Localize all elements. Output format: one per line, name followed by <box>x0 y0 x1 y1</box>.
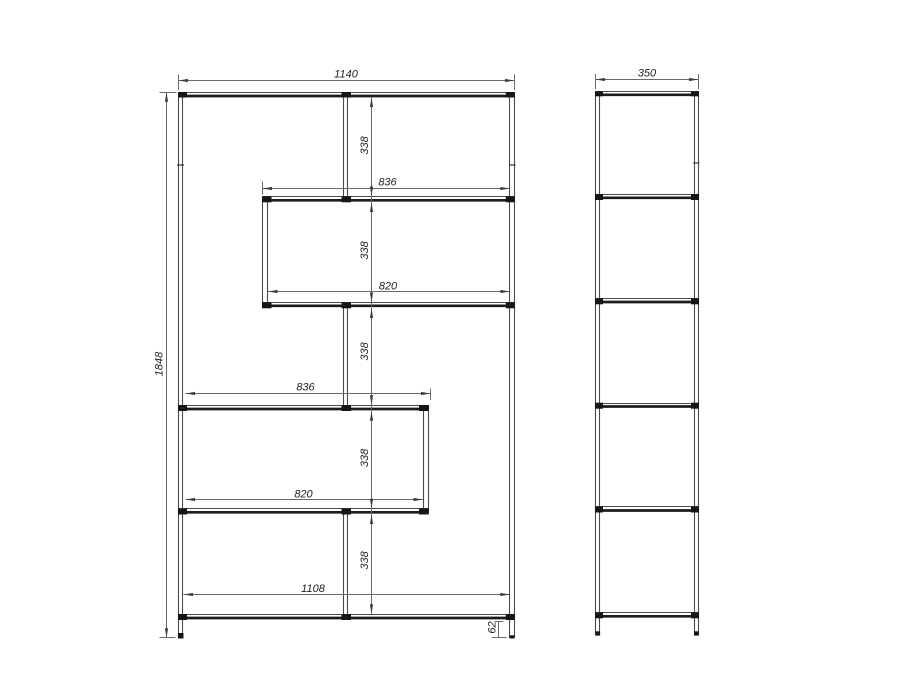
svg-text:820: 820 <box>379 281 398 293</box>
svg-text:1108: 1108 <box>301 583 326 595</box>
svg-text:836: 836 <box>296 382 315 394</box>
svg-text:350: 350 <box>638 68 657 80</box>
svg-text:338: 338 <box>359 341 371 360</box>
svg-text:338: 338 <box>359 448 371 467</box>
svg-text:62: 62 <box>487 621 499 633</box>
svg-text:1140: 1140 <box>334 69 359 81</box>
svg-text:820: 820 <box>294 489 313 501</box>
svg-text:1848: 1848 <box>154 351 166 376</box>
svg-text:338: 338 <box>359 550 371 569</box>
svg-text:338: 338 <box>359 240 371 259</box>
svg-text:338: 338 <box>359 135 371 154</box>
svg-text:836: 836 <box>378 177 397 189</box>
